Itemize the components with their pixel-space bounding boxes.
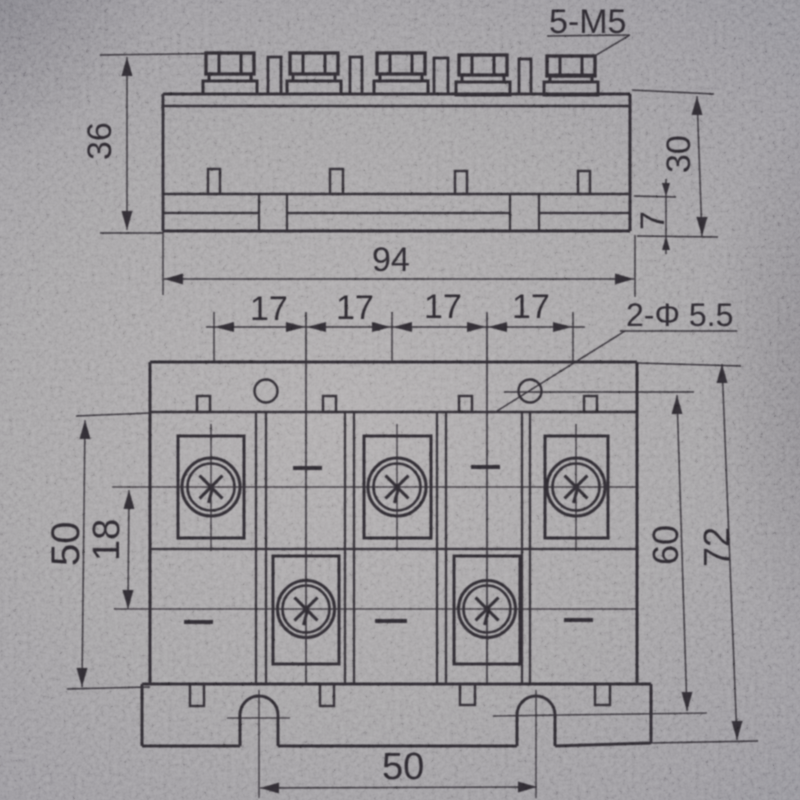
svg-text:2-Φ 5.5: 2-Φ 5.5: [626, 297, 733, 333]
svg-text:50: 50: [382, 746, 424, 788]
svg-text:18: 18: [86, 519, 128, 561]
svg-text:17: 17: [424, 288, 462, 326]
svg-text:17: 17: [336, 289, 374, 327]
svg-text:7: 7: [634, 211, 672, 230]
svg-text:72: 72: [696, 527, 737, 567]
svg-text:60: 60: [645, 525, 686, 565]
svg-text:30: 30: [660, 135, 698, 173]
svg-text:94: 94: [372, 241, 410, 279]
svg-text:17: 17: [512, 288, 550, 326]
svg-text:5-M5: 5-M5: [549, 3, 626, 41]
svg-text:36: 36: [81, 122, 119, 160]
svg-text:50: 50: [44, 522, 88, 567]
svg-text:17: 17: [250, 290, 288, 328]
